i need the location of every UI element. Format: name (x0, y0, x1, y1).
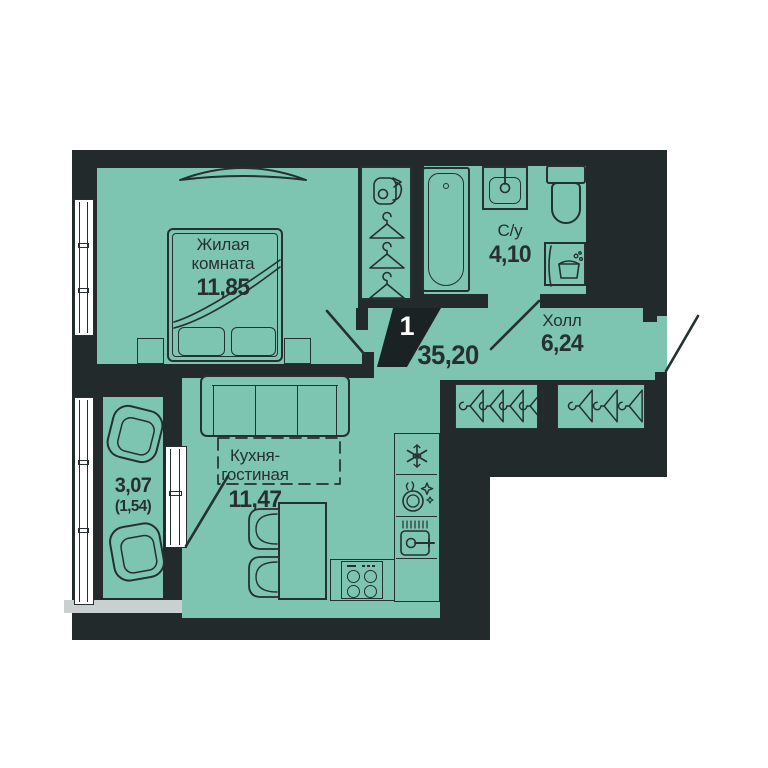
balcony-label: 3,07 (1,54) (98, 474, 168, 515)
floor-plan: 1 Жилая комната 11,85 С/у 4,10 Холл 6,24… (0, 0, 768, 768)
door-swing-lines (0, 0, 768, 768)
hall-label: Холл 6,24 (514, 311, 610, 358)
room-area-coefficient: (1,54) (100, 498, 167, 516)
bathroom-label: С/у 4,10 (464, 221, 556, 269)
room-area: 4,10 (466, 242, 553, 269)
room-area: 6,24 (516, 331, 607, 358)
room-name: Жилая (158, 235, 288, 254)
living-room-label: Жилая комната 11,85 (158, 235, 288, 302)
kitchen-label: Кухня- гостиная 11,47 (190, 446, 320, 514)
room-area: 3,07 (100, 474, 167, 498)
entrance-door-swing (666, 316, 698, 371)
room-area: 11,85 (161, 275, 285, 302)
room-name: Кухня- (190, 446, 320, 465)
room-name: гостиная (190, 465, 320, 484)
living-door-swing (327, 311, 366, 356)
total-area-label: 35,20 (410, 340, 486, 370)
room-area: 11,47 (193, 487, 317, 514)
room-name: Холл (514, 311, 610, 330)
room-name: комната (158, 254, 288, 273)
room-name: С/у (464, 221, 556, 240)
